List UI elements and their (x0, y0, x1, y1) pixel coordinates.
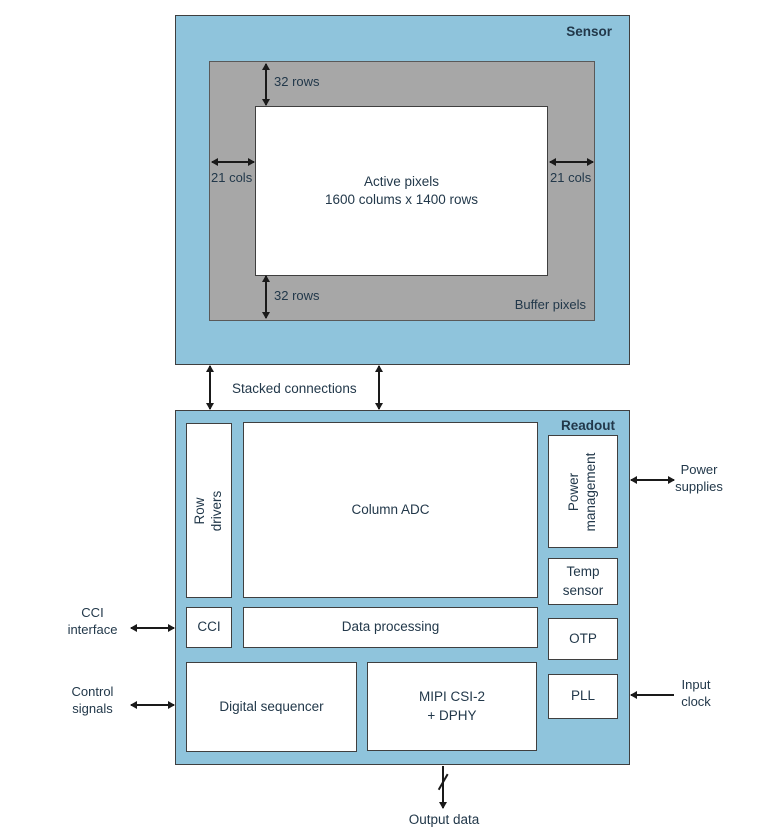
column-adc-block: Column ADC (243, 422, 538, 598)
column-adc-label: Column ADC (351, 501, 429, 519)
temp-sensor-label: Temp sensor (563, 563, 604, 599)
output-data-label: Output data (398, 811, 490, 828)
digital-sequencer-label: Digital sequencer (219, 698, 323, 716)
left-margin-arrow (212, 161, 254, 163)
power-supplies-label: Power supplies (668, 462, 730, 495)
mipi-csi2-block: MIPI CSI-2 + DPHY (367, 662, 537, 751)
bottom-margin-arrow (265, 276, 267, 318)
data-processing-block: Data processing (243, 607, 538, 648)
cci-label: CCI (197, 618, 220, 636)
output-data-arrow (442, 766, 444, 808)
bottom-margin-label: 32 rows (274, 288, 320, 305)
top-margin-label: 32 rows (274, 74, 320, 91)
left-margin-label: 21 cols (211, 170, 252, 187)
readout-box: Readout Row drivers Column ADC Power man… (175, 410, 630, 765)
temp-sensor-block: Temp sensor (548, 558, 618, 605)
stacked-connections-label: Stacked connections (232, 380, 357, 397)
right-margin-label: 21 cols (550, 170, 591, 187)
power-management-label: Power management (566, 452, 600, 531)
control-signals-arrow (131, 704, 174, 706)
pll-block: PLL (548, 674, 618, 719)
active-pixels-box: Active pixels 1600 colums x 1400 rows (255, 106, 548, 276)
top-margin-arrow (265, 64, 267, 105)
input-clock-label: Input clock (668, 677, 724, 710)
power-management-block: Power management (548, 435, 618, 548)
sensor-title: Sensor (566, 23, 612, 40)
active-pixels-label: Active pixels 1600 colums x 1400 rows (325, 173, 478, 209)
sensor-block-diagram: Sensor Active pixels 1600 colums x 1400 … (0, 0, 780, 835)
mipi-csi2-label: MIPI CSI-2 + DPHY (419, 688, 485, 724)
row-drivers-label: Row drivers (192, 490, 226, 531)
cci-interface-arrow (131, 627, 174, 629)
control-signals-label: Control signals (55, 684, 130, 717)
buffer-pixels-label: Buffer pixels (515, 297, 586, 314)
otp-block: OTP (548, 618, 618, 660)
stacked-connection-arrow-left (209, 366, 211, 409)
readout-title: Readout (561, 417, 615, 434)
pll-label: PLL (571, 687, 595, 705)
stacked-connection-arrow-right (378, 366, 380, 409)
cci-interface-label: CCI interface (55, 605, 130, 638)
data-processing-label: Data processing (342, 618, 440, 636)
otp-label: OTP (569, 630, 597, 648)
sensor-box: Sensor Active pixels 1600 colums x 1400 … (175, 15, 630, 365)
row-drivers-block: Row drivers (186, 423, 232, 598)
right-margin-arrow (550, 161, 593, 163)
cci-block: CCI (186, 607, 232, 648)
buffer-pixels-box: Active pixels 1600 colums x 1400 rows 32… (209, 61, 595, 321)
digital-sequencer-block: Digital sequencer (186, 662, 357, 752)
